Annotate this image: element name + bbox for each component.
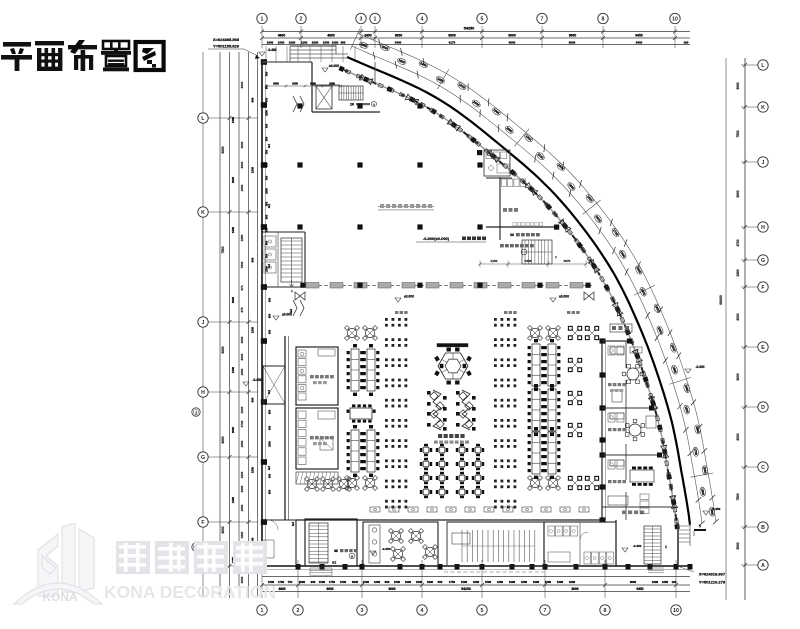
svg-text:1000: 1000: [473, 580, 480, 584]
svg-text:1000: 1000: [427, 580, 434, 584]
svg-text:100: 100: [672, 580, 677, 584]
svg-text:K: K: [761, 105, 765, 111]
svg-text:±0.000: ±0.000: [404, 295, 414, 299]
svg-text:8000: 8000: [736, 433, 740, 440]
svg-text:8000: 8000: [240, 353, 244, 360]
svg-text:1500: 1500: [251, 166, 255, 173]
svg-text:54250: 54250: [461, 587, 471, 591]
svg-text:1500: 1500: [416, 580, 423, 584]
svg-text:8000: 8000: [571, 587, 578, 591]
svg-text:600: 600: [385, 580, 390, 584]
svg-text:K: K: [201, 210, 205, 216]
svg-text:1500: 1500: [231, 366, 235, 373]
svg-text:1: 1: [699, 524, 701, 528]
svg-text:60000: 60000: [719, 295, 723, 305]
svg-text:8000: 8000: [326, 587, 333, 591]
svg-text:1500: 1500: [251, 466, 255, 473]
svg-text:800: 800: [265, 136, 269, 141]
svg-text:1500: 1500: [485, 580, 492, 584]
svg-text:5400: 5400: [525, 259, 532, 263]
svg-text:1500: 1500: [363, 580, 370, 584]
svg-text:2000: 2000: [657, 327, 663, 335]
svg-text:300: 300: [265, 97, 269, 102]
svg-text:±0.000: ±0.000: [559, 295, 569, 299]
svg-text:1500: 1500: [251, 326, 255, 333]
svg-text:3000: 3000: [352, 580, 359, 584]
svg-text:8: 8: [602, 16, 605, 22]
svg-text:300: 300: [265, 253, 269, 258]
svg-text:300: 300: [265, 175, 269, 180]
svg-text:1600: 1600: [267, 41, 274, 45]
svg-text:3000: 3000: [240, 336, 244, 343]
svg-text:1600: 1600: [289, 41, 296, 45]
svg-text:8000: 8000: [736, 313, 740, 320]
svg-text:A: A: [761, 563, 765, 569]
svg-text:1300: 1300: [497, 580, 504, 584]
svg-text:1900: 1900: [684, 384, 690, 392]
svg-text:8000: 8000: [221, 436, 225, 443]
svg-text:1000: 1000: [652, 580, 659, 584]
svg-text:1: 1: [291, 289, 293, 293]
svg-text:1500: 1500: [231, 226, 235, 233]
svg-text:1750: 1750: [329, 580, 336, 584]
svg-text:H: H: [761, 225, 765, 231]
svg-text:1600: 1600: [458, 82, 466, 89]
svg-text:7: 7: [544, 608, 547, 614]
svg-text:9450: 9450: [636, 587, 643, 591]
svg-text:-0.300(±0.000): -0.300(±0.000): [423, 236, 450, 241]
svg-text:300: 300: [265, 71, 269, 76]
svg-text:2000: 2000: [381, 45, 389, 51]
svg-text:±0.000: ±0.000: [329, 64, 339, 68]
svg-text:600: 600: [251, 97, 255, 102]
svg-text:GZ: GZ: [291, 522, 295, 526]
svg-text:1500: 1500: [268, 441, 272, 447]
svg-text:1800: 1800: [398, 58, 406, 65]
svg-text:1850: 1850: [240, 234, 244, 241]
svg-text:1500: 1500: [240, 184, 244, 191]
svg-text:800: 800: [265, 240, 269, 245]
svg-text:8000: 8000: [221, 146, 225, 153]
svg-text:D: D: [761, 405, 765, 411]
svg-text:Y=501210.279: Y=501210.279: [699, 580, 726, 585]
svg-text:3: 3: [360, 16, 363, 22]
svg-text:8000: 8000: [448, 34, 456, 38]
svg-text:1000: 1000: [332, 41, 339, 45]
svg-text:9000: 9000: [630, 580, 637, 584]
svg-text:7500: 7500: [240, 261, 244, 268]
svg-text:X=624385.568: X=624385.568: [213, 37, 240, 42]
svg-text:754: 754: [288, 580, 293, 584]
svg-text:670: 670: [240, 285, 244, 290]
svg-text:2000: 2000: [231, 426, 235, 433]
svg-text:8: 8: [604, 608, 607, 614]
svg-text:6175: 6175: [449, 41, 456, 45]
svg-text:4: 4: [421, 608, 424, 614]
svg-text:2100: 2100: [537, 152, 545, 160]
svg-text:KONA: KONA: [42, 590, 78, 604]
svg-text:5075: 5075: [564, 259, 571, 263]
svg-text:300: 300: [268, 473, 272, 478]
svg-text:100: 100: [684, 41, 689, 45]
svg-text:G: G: [201, 455, 205, 461]
svg-text:KONA DECORATION: KONA DECORATION: [104, 582, 276, 602]
svg-text:1500: 1500: [492, 108, 500, 116]
svg-text:800: 800: [268, 489, 272, 494]
svg-text:7500: 7500: [736, 130, 740, 137]
svg-text:2000: 2000: [240, 406, 244, 413]
svg-text:1500: 1500: [619, 250, 626, 258]
svg-text:G: G: [761, 258, 765, 264]
svg-text:6000: 6000: [240, 161, 244, 168]
svg-text:1: 1: [555, 255, 557, 259]
svg-text:1500: 1500: [323, 41, 330, 45]
svg-text:1: 1: [374, 16, 377, 22]
svg-text:A: A: [351, 555, 353, 559]
svg-text:10: 10: [673, 608, 679, 614]
svg-text:6000: 6000: [736, 82, 740, 89]
svg-text:1500: 1500: [329, 82, 335, 86]
svg-text:2#: 2#: [350, 103, 354, 107]
svg-text:5: 5: [481, 608, 484, 614]
svg-text:4600: 4600: [327, 34, 335, 38]
svg-text:2: 2: [297, 608, 300, 614]
svg-text:1: 1: [261, 16, 264, 22]
svg-text:1500: 1500: [340, 580, 347, 584]
svg-text:8000: 8000: [508, 34, 516, 38]
svg-text:J: J: [762, 160, 765, 166]
svg-text:375: 375: [240, 307, 244, 312]
svg-text:1500: 1500: [278, 41, 285, 45]
svg-text:A: A: [373, 102, 375, 106]
svg-text:1500: 1500: [545, 580, 552, 584]
svg-text:1600: 1600: [672, 366, 678, 374]
svg-text:2000: 2000: [472, 100, 480, 107]
svg-text:1000: 1000: [509, 580, 516, 584]
svg-text:2000: 2000: [312, 41, 319, 45]
svg-text:-0.450: -0.450: [382, 547, 391, 551]
svg-text:1: 1: [665, 545, 667, 549]
svg-text:3300: 3300: [240, 485, 244, 492]
svg-text:7500: 7500: [221, 246, 225, 253]
svg-text:600: 600: [251, 397, 255, 402]
svg-text:2200: 2200: [635, 266, 642, 274]
svg-text:900: 900: [341, 41, 346, 45]
svg-text:2000: 2000: [310, 82, 316, 86]
svg-text:1000: 1000: [533, 580, 540, 584]
svg-text:4800: 4800: [278, 587, 285, 591]
svg-text:1700: 1700: [278, 580, 285, 584]
svg-text:1500: 1500: [240, 368, 244, 375]
svg-text:J: J: [202, 320, 205, 326]
svg-text:4700: 4700: [240, 420, 244, 427]
svg-text:±0.000: ±0.000: [282, 313, 292, 317]
svg-text:3400: 3400: [395, 41, 402, 45]
svg-text:F: F: [761, 285, 764, 291]
svg-text:Y=501155.829: Y=501155.829: [213, 44, 240, 49]
svg-text:C: C: [761, 465, 765, 471]
svg-text:1700: 1700: [612, 229, 619, 237]
svg-text:2200: 2200: [419, 61, 427, 68]
svg-text:2000: 2000: [273, 82, 279, 86]
svg-text:1500: 1500: [461, 580, 468, 584]
svg-text:-0.450: -0.450: [712, 507, 721, 511]
svg-text:6000: 6000: [240, 81, 244, 88]
svg-text:2150: 2150: [491, 259, 498, 263]
svg-text:5000: 5000: [736, 542, 740, 549]
svg-text:1500: 1500: [436, 77, 444, 84]
svg-text:8000: 8000: [569, 41, 576, 45]
svg-text:8000: 8000: [395, 34, 403, 38]
svg-text:X=624318.867: X=624318.867: [699, 572, 726, 577]
svg-text:2000: 2000: [594, 215, 602, 223]
svg-text:1500: 1500: [394, 580, 401, 584]
svg-text:-0.300: -0.300: [695, 365, 704, 369]
svg-text:4: 4: [421, 16, 424, 22]
svg-text:8000: 8000: [221, 346, 225, 353]
svg-text:3: 3: [361, 608, 364, 614]
svg-text:1300: 1300: [557, 580, 564, 584]
svg-text:300: 300: [268, 329, 272, 334]
svg-text:300: 300: [265, 149, 269, 154]
svg-text:1500: 1500: [525, 134, 533, 142]
svg-text:4800: 4800: [240, 531, 244, 538]
svg-text:300: 300: [438, 580, 443, 584]
svg-text:GZ: GZ: [332, 561, 336, 565]
svg-text:1800: 1800: [505, 126, 513, 134]
svg-text:800: 800: [265, 162, 269, 167]
svg-text:1500: 1500: [240, 471, 244, 478]
svg-text:1000: 1000: [405, 580, 412, 584]
svg-text:1500: 1500: [292, 82, 298, 86]
svg-text:-0.450: -0.450: [252, 378, 261, 382]
svg-text:1500: 1500: [586, 195, 594, 203]
svg-text:300: 300: [268, 297, 272, 302]
svg-text:1300: 1300: [374, 580, 381, 584]
svg-text:8000: 8000: [736, 190, 740, 197]
svg-text:1200: 1200: [301, 41, 308, 45]
svg-text:GZ: GZ: [267, 466, 271, 470]
svg-text:800: 800: [268, 313, 272, 318]
svg-text:995: 995: [311, 580, 316, 584]
svg-text:8000: 8000: [736, 373, 740, 380]
svg-text:8000: 8000: [388, 587, 395, 591]
svg-text:F: F: [201, 520, 204, 526]
svg-text:GZ: GZ: [267, 204, 271, 208]
svg-text:4800: 4800: [278, 34, 286, 38]
svg-text:3000: 3000: [240, 141, 244, 148]
svg-text:4#: 4#: [334, 549, 338, 553]
svg-text:3000: 3000: [231, 296, 235, 303]
svg-text:8000: 8000: [569, 34, 577, 38]
svg-text:1900: 1900: [568, 183, 576, 191]
svg-text:1500: 1500: [240, 504, 244, 511]
svg-text:3300: 3300: [736, 269, 740, 276]
svg-text:1000: 1000: [569, 580, 576, 584]
svg-text:9450: 9450: [635, 34, 643, 38]
svg-text:5: 5: [481, 16, 484, 22]
svg-text:300: 300: [268, 425, 272, 430]
svg-text:1500: 1500: [670, 344, 676, 352]
svg-text:H: H: [201, 390, 205, 396]
svg-text:1: 1: [261, 608, 264, 614]
svg-text:8000: 8000: [221, 526, 225, 533]
svg-text:-0.450: -0.450: [633, 544, 642, 548]
svg-text:1300: 1300: [662, 580, 669, 584]
svg-text:2: 2: [300, 16, 303, 22]
svg-text:10: 10: [672, 16, 678, 22]
svg-text:7: 7: [541, 16, 544, 22]
svg-text:7500: 7500: [736, 493, 740, 500]
svg-text:E: E: [761, 345, 765, 351]
svg-text:GZ: GZ: [267, 144, 271, 148]
svg-text:1500: 1500: [231, 116, 235, 123]
svg-text:300: 300: [265, 123, 269, 128]
svg-text:900: 900: [251, 257, 255, 262]
svg-text:B: B: [761, 525, 765, 531]
svg-text:1500: 1500: [319, 580, 326, 584]
svg-text:-0.480: -0.480: [267, 48, 276, 52]
svg-text:800: 800: [268, 409, 272, 414]
svg-text:9400: 9400: [636, 41, 643, 45]
svg-text:1500: 1500: [265, 110, 269, 116]
svg-text:8000: 8000: [509, 41, 516, 45]
svg-text:1500: 1500: [240, 440, 244, 447]
svg-text:1750: 1750: [449, 580, 456, 584]
svg-text:1500: 1500: [521, 580, 528, 584]
svg-text:2000: 2000: [231, 176, 235, 183]
svg-text:1500: 1500: [265, 188, 269, 194]
svg-text:54250: 54250: [464, 27, 475, 31]
svg-text:1500: 1500: [231, 496, 235, 503]
svg-text:3#: 3#: [510, 233, 514, 237]
svg-text:4700: 4700: [736, 239, 740, 246]
svg-text:3000: 3000: [299, 580, 306, 584]
svg-text:800: 800: [265, 214, 269, 219]
svg-text:300: 300: [265, 227, 269, 232]
